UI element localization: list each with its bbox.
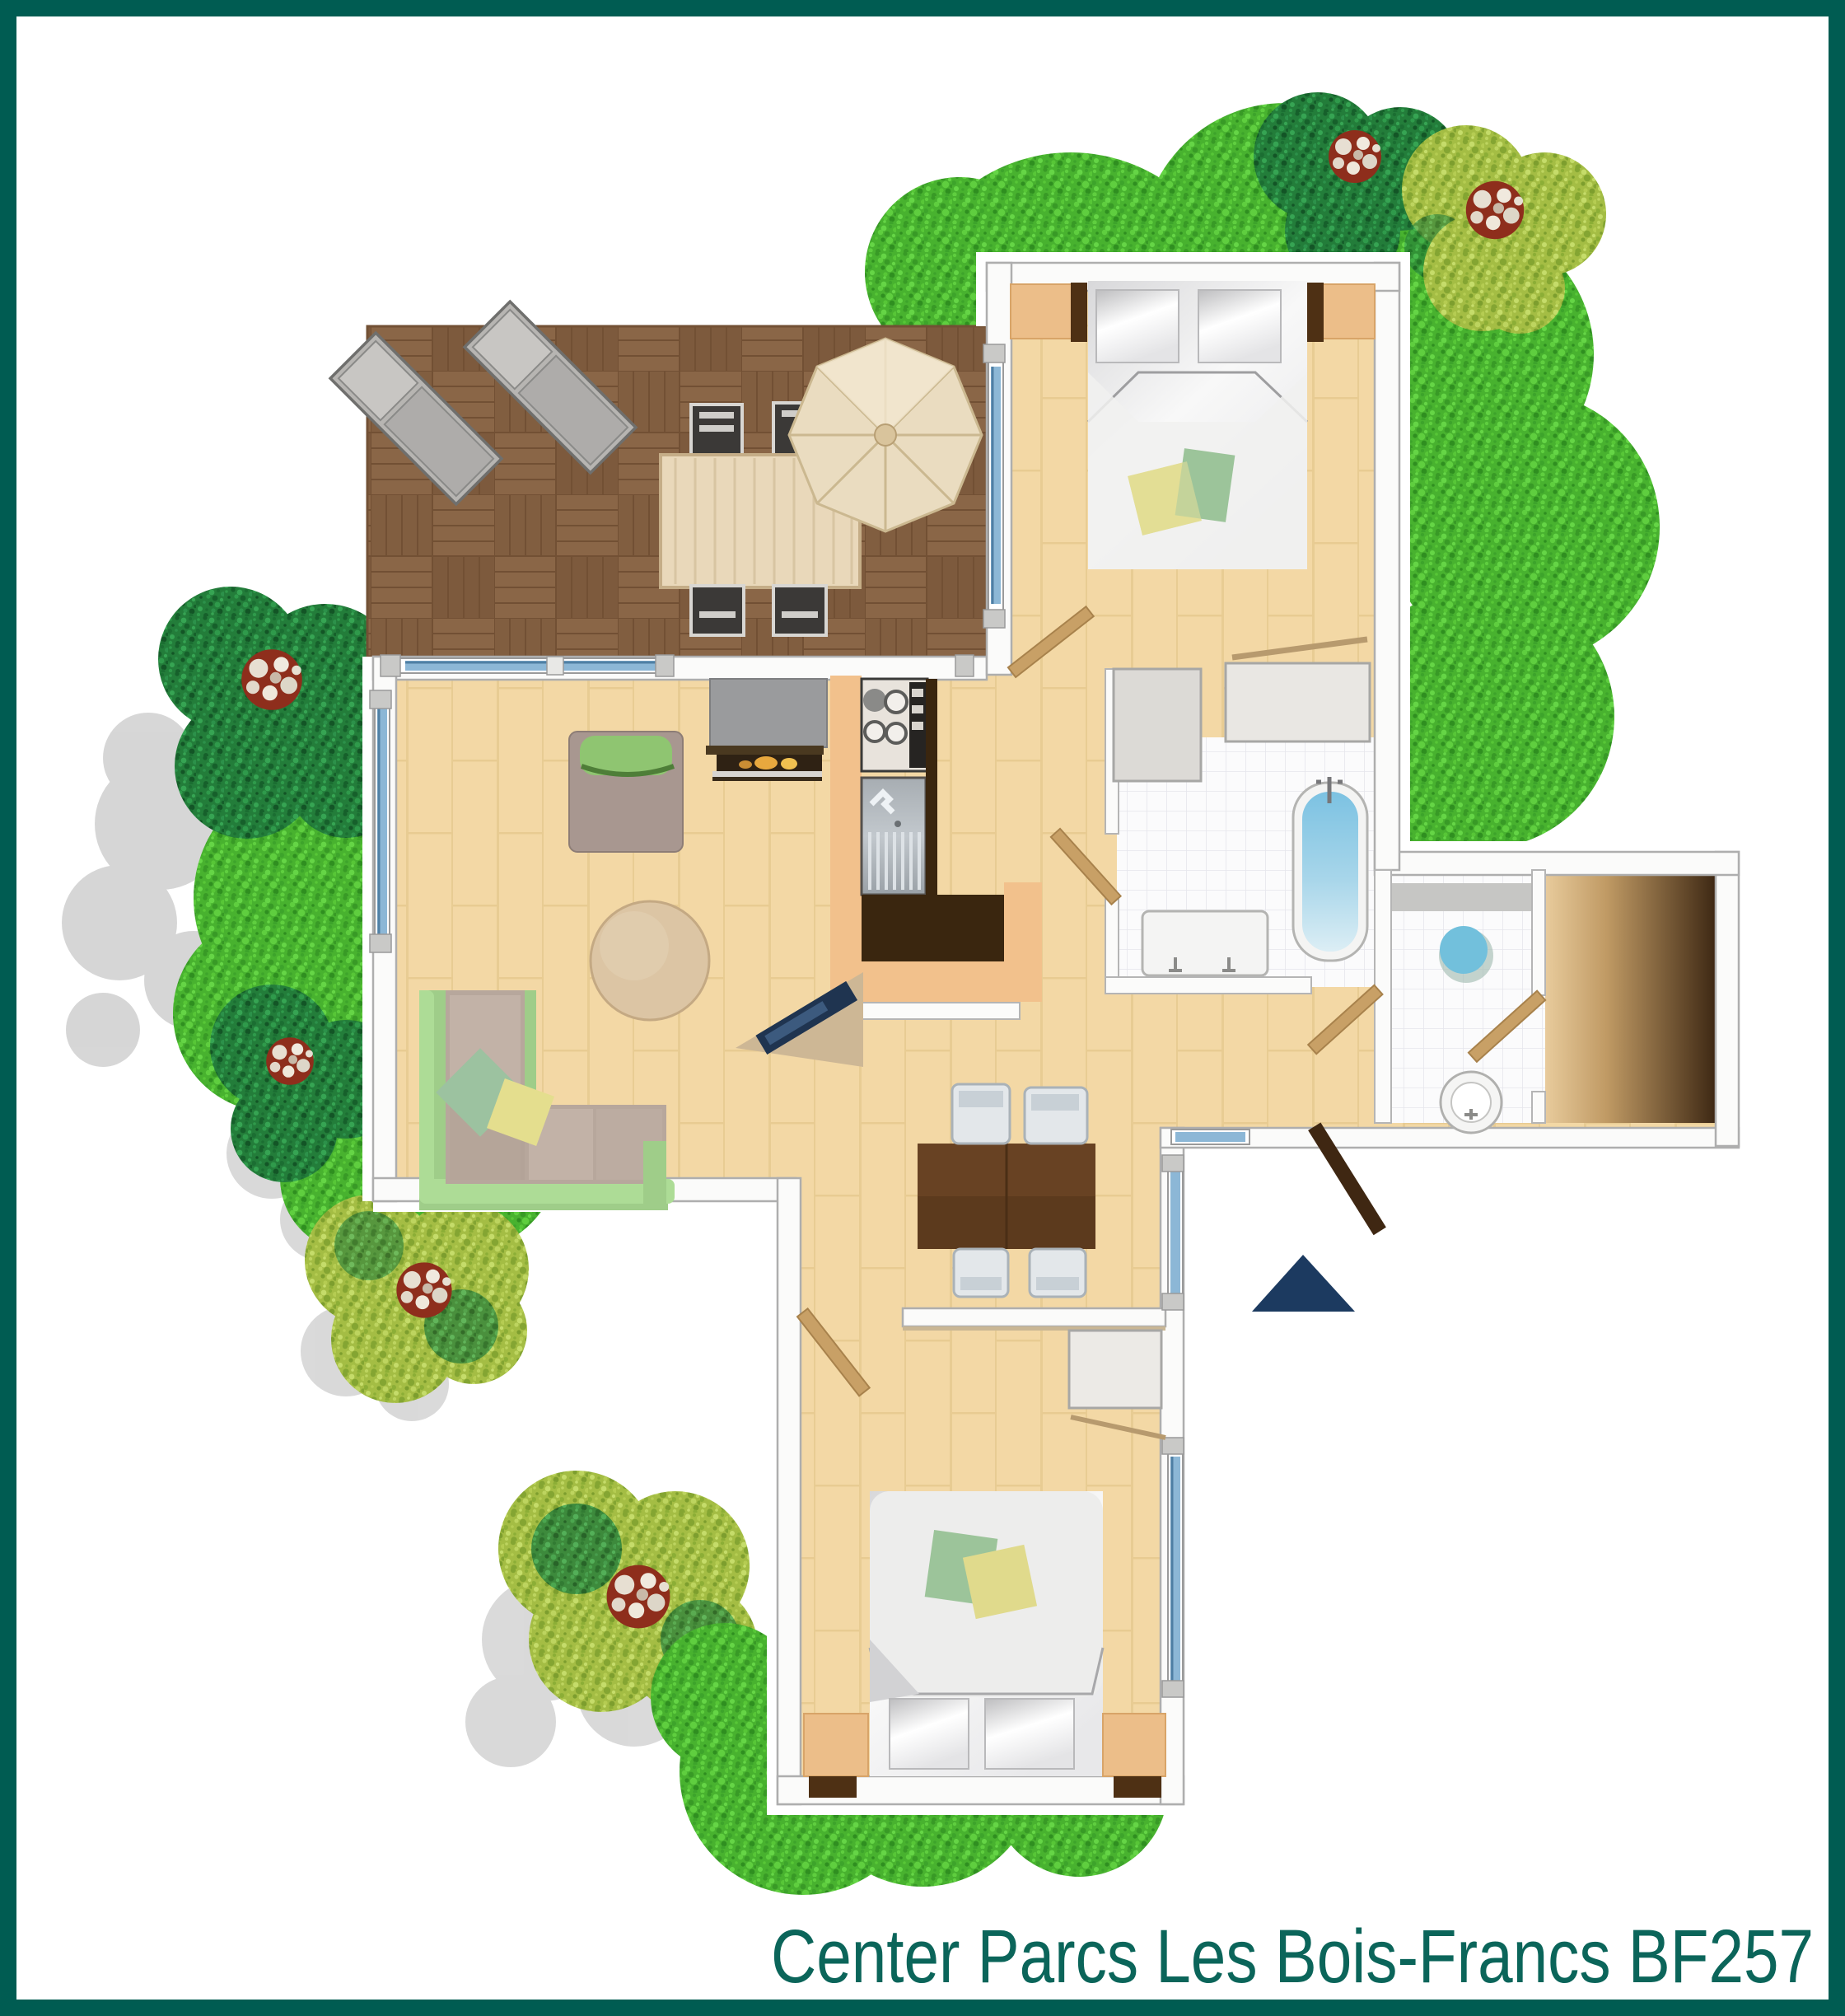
- svg-text:Center Parcs Les Bois-Francs B: Center Parcs Les Bois-Francs BF257: [771, 1915, 1814, 1999]
